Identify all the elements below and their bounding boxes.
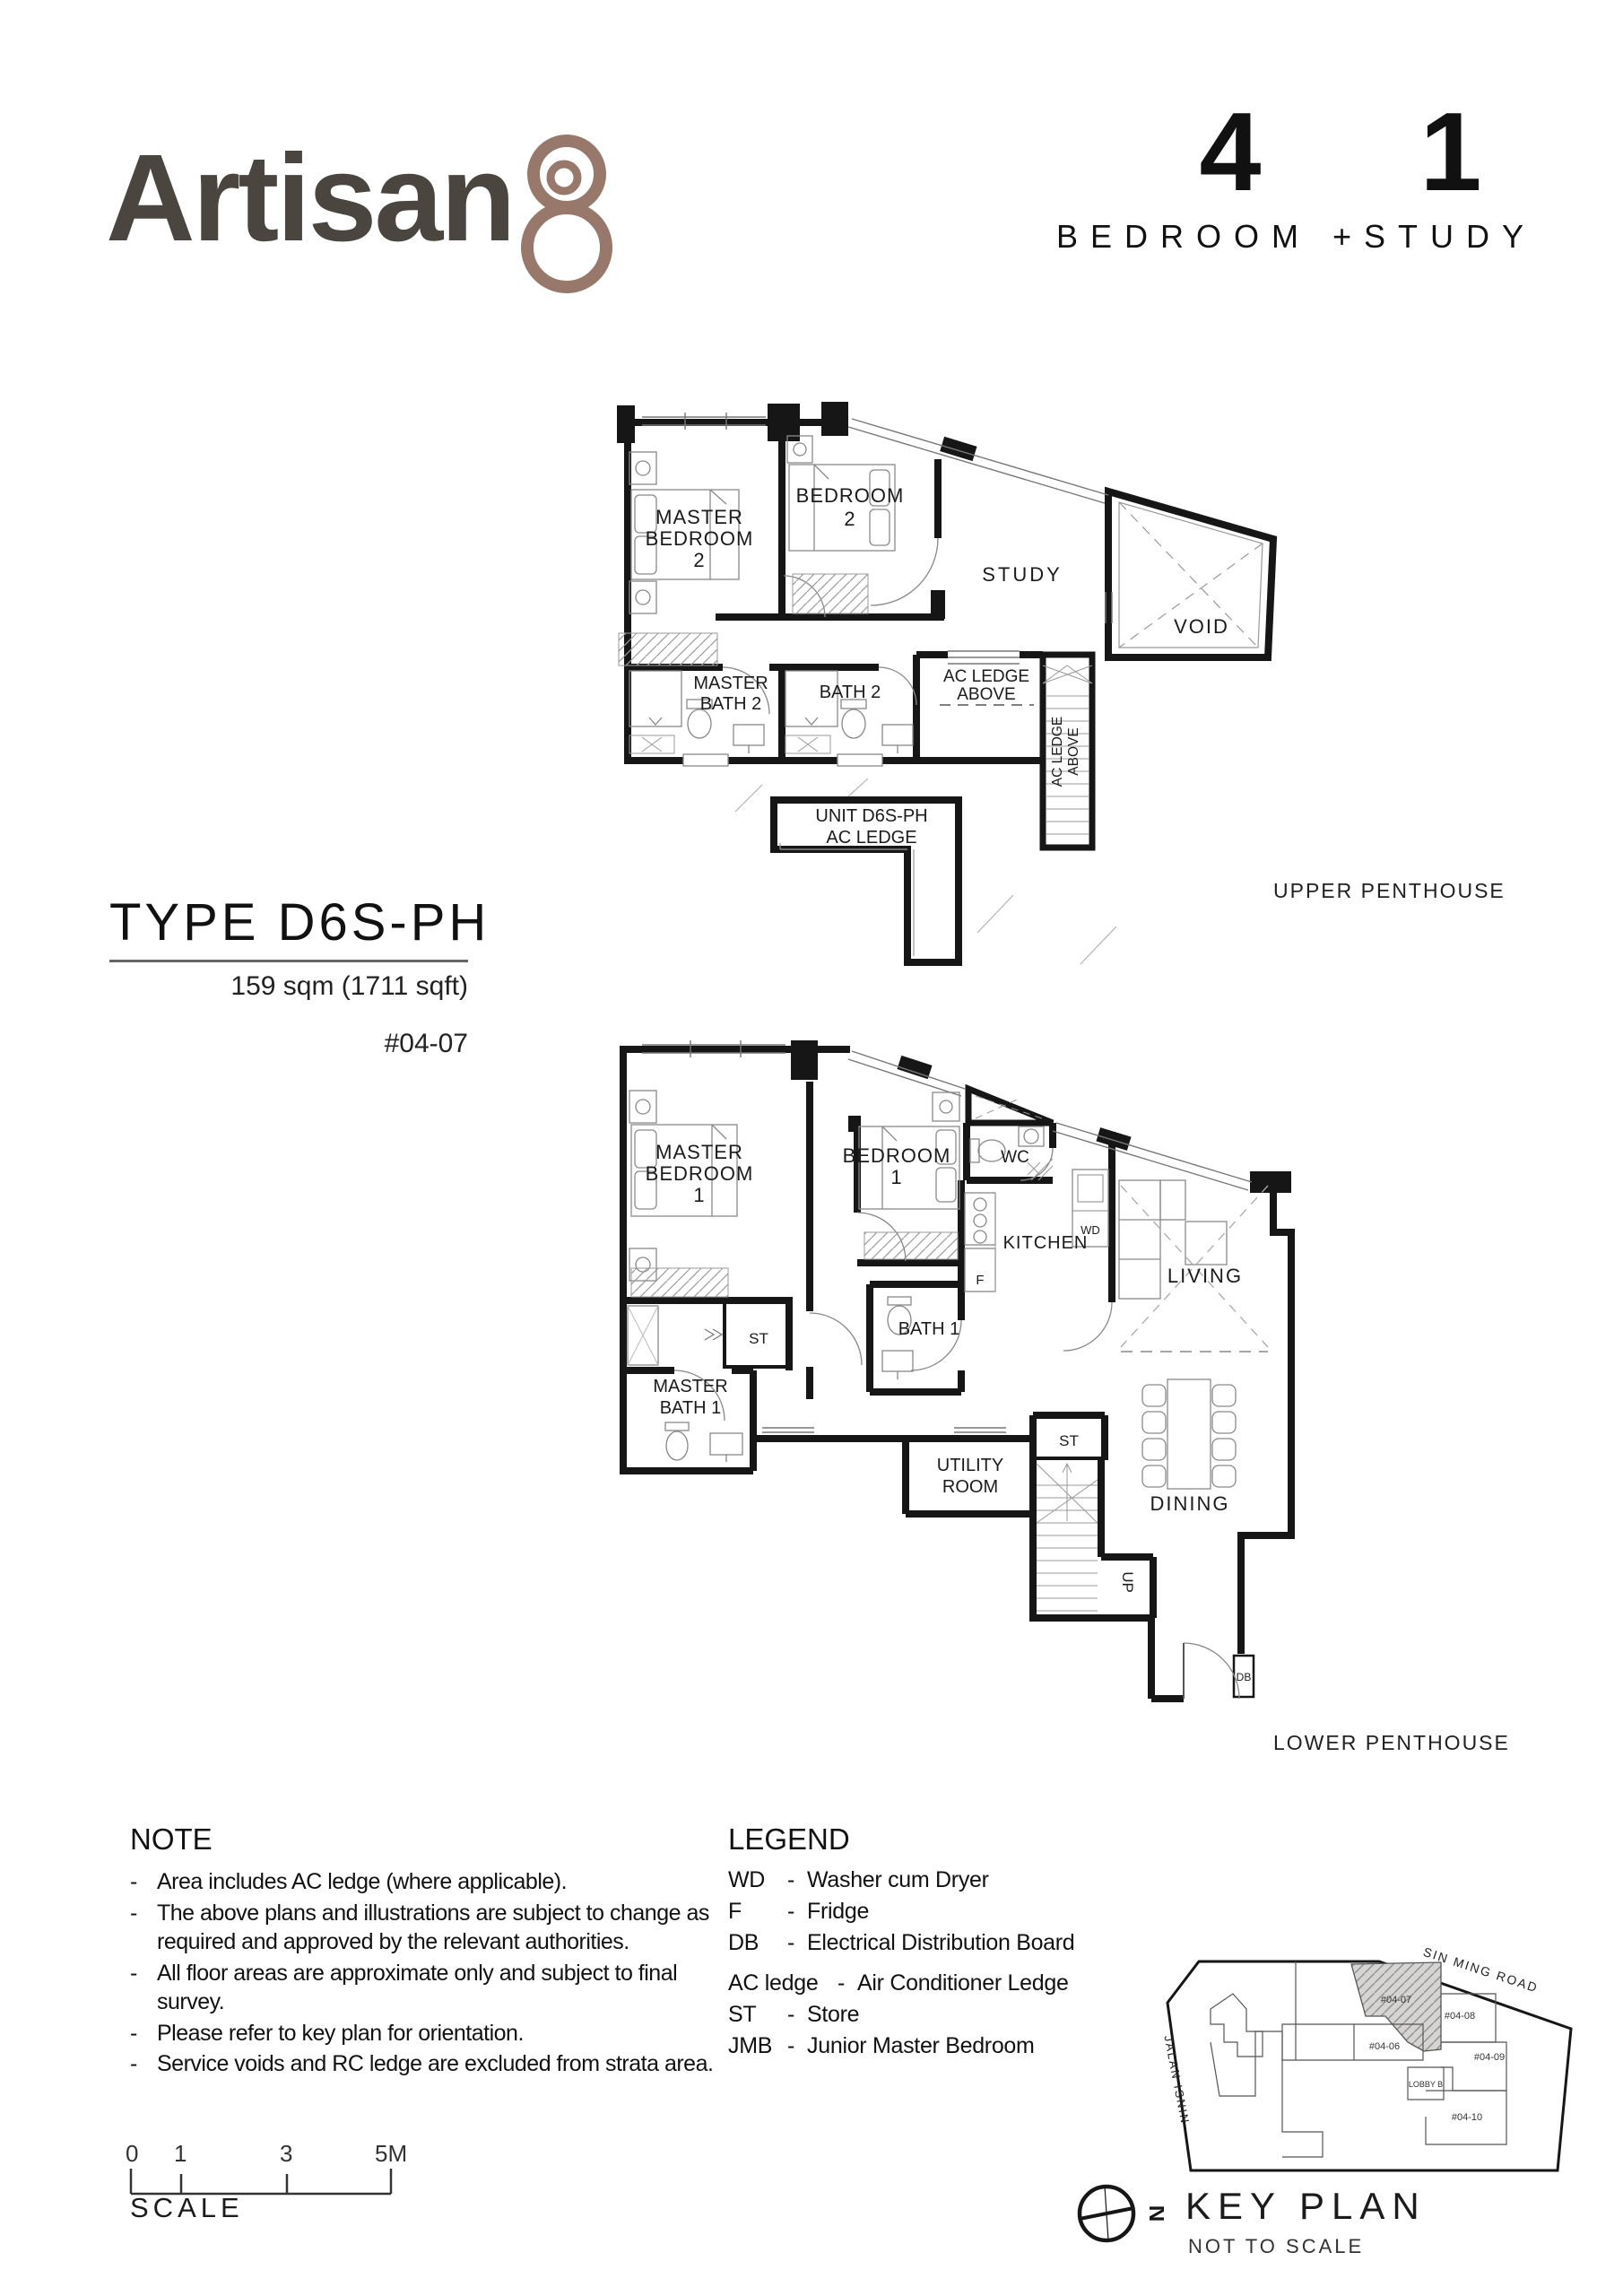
bullet-dash <box>130 2019 157 2048</box>
store-1-label: ST <box>749 1330 768 1347</box>
unit-04-08-label: #04-08 <box>1445 2011 1475 2022</box>
legend-row: AC ledgeAir Conditioner Ledge <box>728 1970 1074 1996</box>
store-2-label: ST <box>1059 1432 1079 1449</box>
bedroom-count: 4 <box>1185 97 1275 208</box>
note-item: Service voids and RC ledge are excluded … <box>130 2049 722 2079</box>
legend-row: FFridge <box>728 1899 1074 1925</box>
bedroom-2-label: BEDROOM <box>796 484 905 507</box>
bullet-dash <box>130 2049 157 2079</box>
stairs <box>1037 1464 1098 1611</box>
key-plan: #04-07 #04-08 #04-06 #04-09 #04-10 LOBBY… <box>1148 1924 1578 2193</box>
unit-04-06-label: #04-06 <box>1369 2041 1400 2052</box>
svg-text:BEDROOM: BEDROOM <box>646 1162 754 1185</box>
wardrobe-master-1 <box>631 1268 728 1297</box>
type-block: TYPE D6S-PH 159 sqm (1711 sqft) #04-07 <box>109 892 490 1059</box>
bedroom-1-label: BEDROOM <box>843 1144 951 1167</box>
bullet-dash <box>130 1867 157 1897</box>
legend-row: JMBJunior Master Bedroom <box>728 2033 1074 2059</box>
shower-stall <box>628 1306 658 1365</box>
north-arrow-icon: N <box>1074 2178 1164 2249</box>
unit-04-09-label: #04-09 <box>1474 2052 1505 2063</box>
north-n-label: N <box>1144 2205 1164 2222</box>
note-item: Please refer to key plan for orientation… <box>130 2019 722 2048</box>
dining-furniture <box>1142 1379 1236 1489</box>
upper-floor-plan: MASTER BEDROOM 2 BEDROOM 2 STUDY VOID MA… <box>603 402 1320 1004</box>
note-item: Area includes AC ledge (where applicable… <box>130 1867 722 1897</box>
keyplan-title: KEY PLAN <box>1185 2185 1427 2228</box>
master-bedroom-1-label: MASTER <box>655 1141 743 1163</box>
legend-row: DBElectrical Distribution Board <box>728 1930 1074 1956</box>
ac-ledge-above-label: AC LEDGE <box>943 667 1029 686</box>
ac-ledge-above-vertical-label: AC LEDGE <box>1050 717 1065 787</box>
bath-2-label: BATH 2 <box>820 683 881 702</box>
utility-room-label: UTILITY <box>937 1456 1003 1475</box>
unit-04-10-label: #04-10 <box>1452 2112 1482 2123</box>
upper-shelf-boxes <box>629 735 830 753</box>
keyplan-subtitle: NOT TO SCALE <box>1188 2235 1364 2258</box>
lobby-label: LOBBY B <box>1409 2080 1443 2089</box>
study-count: 1 <box>1406 97 1496 208</box>
floorplan-page: Artisan 4 1 BEDROOM +STUDY TYPE D6S-PH 1… <box>0 0 1623 2296</box>
unit-mix-label: BEDROOM +STUDY <box>1056 218 1536 256</box>
bullet-dash <box>130 1899 157 1957</box>
svg-text:BATH 2: BATH 2 <box>700 694 762 714</box>
note-section: NOTE Area includes AC ledge (where appli… <box>130 1822 722 2081</box>
study-label: STUDY <box>982 563 1063 586</box>
wardrobe-bedroom-2 <box>793 574 868 613</box>
unit-04-07-label: #04-07 <box>1381 1995 1411 2005</box>
void-label: VOID <box>1174 615 1229 638</box>
scale-label: SCALE <box>130 2192 244 2224</box>
door-chevron-icon <box>705 1329 722 1340</box>
master-bedroom-2-label: MASTER <box>655 506 743 528</box>
svg-text:1: 1 <box>174 2142 187 2167</box>
legend-title: LEGEND <box>728 1822 1074 1857</box>
db-label: DB <box>1237 1671 1252 1683</box>
living-label: LIVING <box>1167 1265 1243 1287</box>
type-title: TYPE D6S-PH <box>109 892 490 952</box>
svg-text:ROOM: ROOM <box>942 1477 998 1497</box>
svg-text:BEDROOM: BEDROOM <box>646 527 754 550</box>
svg-text:BATH 1: BATH 1 <box>660 1398 722 1418</box>
bullet-dash <box>130 1959 157 2017</box>
up-label: UP <box>1119 1571 1136 1593</box>
wd-label: WD <box>1081 1223 1100 1237</box>
svg-text:3: 3 <box>280 2142 292 2167</box>
wc-label: WC <box>1001 1148 1029 1167</box>
entrance-door-arc <box>1184 1643 1239 1699</box>
wardrobe-bedroom-1 <box>864 1232 958 1259</box>
svg-text:AC LEDGE: AC LEDGE <box>826 828 916 848</box>
upper-plan-caption: UPPER PENTHOUSE <box>1273 879 1506 903</box>
note-title: NOTE <box>130 1822 722 1857</box>
legend-row: WDWasher cum Dryer <box>728 1867 1074 1893</box>
svg-text:2: 2 <box>844 508 855 530</box>
brand-logo-8-icon <box>520 124 613 301</box>
kitchen-label: KITCHEN <box>1003 1233 1089 1253</box>
svg-text:1: 1 <box>890 1166 902 1188</box>
wardrobe-master-2 <box>619 633 717 665</box>
note-item: All floor areas are approximate only and… <box>130 1959 722 2017</box>
brand-logo: Artisan <box>106 136 513 260</box>
lower-floor-plan: MASTER BEDROOM 1 BEDROOM 1 WC KITCHEN LI… <box>601 1022 1327 1722</box>
type-area: 159 sqm (1711 sqft) <box>109 971 468 1002</box>
type-underline <box>109 960 468 962</box>
fridge-label: F <box>976 1273 984 1288</box>
master-bath-2-label: MASTER <box>693 674 768 693</box>
note-item: The above plans and illustrations are su… <box>130 1899 722 1957</box>
svg-text:0: 0 <box>126 2142 138 2167</box>
svg-text:1: 1 <box>693 1184 705 1206</box>
unit-ledge-inner-lines <box>780 843 914 956</box>
dining-label: DINING <box>1150 1492 1230 1515</box>
svg-text:5M: 5M <box>375 2142 407 2167</box>
brand-logo-text: Artisan <box>106 129 513 267</box>
type-unit-number: #04-07 <box>109 1029 468 1059</box>
scale-bar-lines <box>131 2169 391 2194</box>
unit-ac-ledge-label: UNIT D6S-PH <box>815 806 927 826</box>
svg-text:2: 2 <box>693 549 705 571</box>
svg-text:ABOVE: ABOVE <box>957 685 1015 704</box>
svg-text:ABOVE: ABOVE <box>1066 727 1081 775</box>
bed-master-1 <box>629 1091 737 1281</box>
legend-row: STStore <box>728 2002 1074 2028</box>
master-bath-1-label: MASTER <box>653 1377 727 1396</box>
legend-section: LEGEND WDWasher cum Dryer FFridge DBElec… <box>728 1822 1074 2065</box>
lower-plan-caption: LOWER PENTHOUSE <box>1273 1731 1510 1755</box>
bath-1-label: BATH 1 <box>898 1319 960 1339</box>
scale-tick-labels: 0 1 3 5M <box>126 2142 407 2167</box>
